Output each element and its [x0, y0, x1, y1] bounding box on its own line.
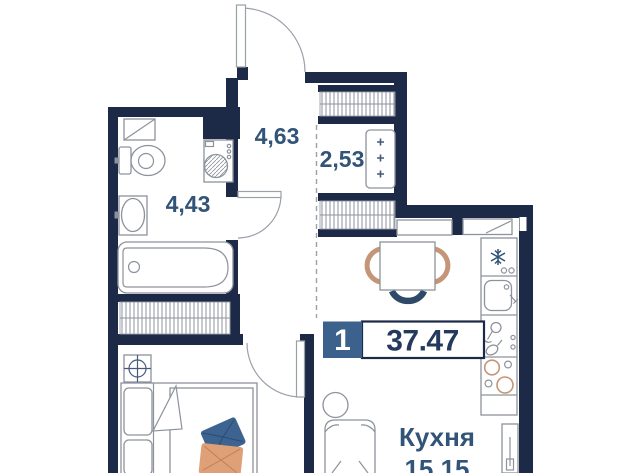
badge-total-area: 37.47	[386, 325, 459, 358]
bathroom-area-label: 4,43	[166, 191, 211, 217]
area-badge: 1 37.47	[323, 322, 484, 359]
bathroom-door	[238, 192, 281, 239]
hall-closet-unit	[120, 302, 230, 334]
armchair	[323, 393, 375, 473]
water-heater-shelf	[124, 119, 155, 140]
toilet	[115, 146, 166, 176]
kitchen-area-label: 15.15	[404, 454, 469, 473]
kitchen-name-label: Кухня	[399, 422, 475, 452]
entry-door	[237, 5, 306, 72]
closet-panel	[366, 130, 395, 188]
wardrobe-unit-bottom	[320, 201, 395, 229]
dining-table-group	[367, 242, 448, 301]
wardrobe-unit-top	[320, 92, 395, 116]
chair-left	[367, 249, 380, 282]
bathtub	[118, 242, 233, 293]
washing-machine	[204, 140, 233, 182]
chair-bottom	[392, 291, 424, 301]
radiator	[124, 355, 151, 382]
side-table	[323, 393, 348, 418]
entry-door-leaf	[237, 5, 246, 67]
floor-plan: 1 37.47 4,63 4,43 2,53 Кухня 15.15	[0, 0, 640, 473]
pillow-orange	[198, 443, 243, 473]
hallway-area-label: 4,63	[255, 123, 300, 149]
wall-niche	[520, 217, 527, 231]
bathroom-sink	[115, 196, 148, 235]
badge-room-count: 1	[334, 324, 351, 357]
chair-right	[435, 249, 448, 282]
dining-table	[380, 242, 435, 290]
bedroom-door-leaf	[297, 341, 305, 397]
tall-cabinet	[502, 424, 518, 473]
bathroom-door-leaf	[238, 192, 281, 198]
closet-area-label: 2,53	[320, 146, 365, 172]
